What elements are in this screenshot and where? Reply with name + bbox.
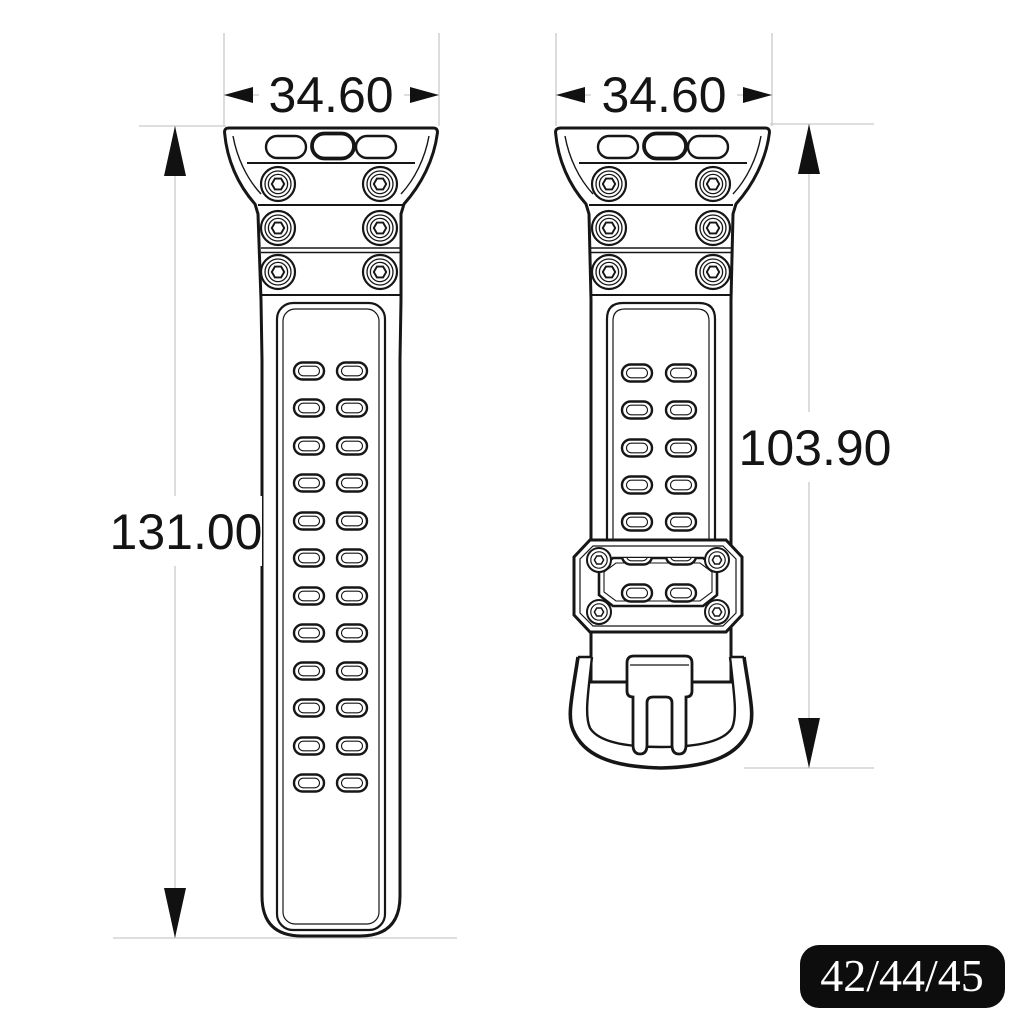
size-badge-label: 42/44/45 — [820, 950, 984, 1001]
strap-hole — [622, 365, 652, 382]
drawing-canvas: 34.60 34.60 131.00 103.90 42/44/45 — [0, 0, 1024, 1024]
strap-hole — [294, 475, 324, 492]
left-length-label: 131.00 — [110, 504, 263, 560]
strap-hole — [294, 400, 324, 417]
strap-hole — [337, 663, 367, 680]
strap-drawing: 34.60 34.60 131.00 103.90 42/44/45 — [0, 0, 1024, 1024]
strap-hole — [337, 550, 367, 567]
strap-hole — [294, 775, 324, 792]
strap-hole — [666, 402, 696, 419]
strap-hole — [622, 402, 652, 419]
screw — [592, 255, 626, 289]
buckle-tongue — [627, 656, 692, 754]
screw — [696, 167, 730, 201]
lug-slot — [688, 136, 728, 158]
arrow-up-icon — [798, 124, 820, 174]
size-badge: 42/44/45 — [800, 945, 1005, 1008]
left-width-label: 34.60 — [268, 67, 393, 123]
keeper-screw — [705, 548, 729, 572]
strap-panel-outer — [277, 303, 385, 930]
keeper-screw — [587, 600, 611, 624]
strap-hole — [337, 700, 367, 717]
lug-slot-center — [312, 134, 354, 159]
strap-hole — [337, 625, 367, 642]
strap-hole — [337, 438, 367, 455]
screw — [261, 255, 295, 289]
strap-hole — [622, 514, 652, 531]
screw — [696, 211, 730, 245]
right-length-label: 103.90 — [739, 420, 892, 476]
strap-hole — [337, 475, 367, 492]
keeper-screw — [587, 548, 611, 572]
screw — [261, 167, 295, 201]
strap-panel-outer — [607, 303, 715, 548]
arrow-down-icon — [164, 888, 186, 938]
arrow-up-icon — [164, 126, 186, 176]
strap-hole — [666, 514, 696, 531]
screw — [363, 255, 397, 289]
strap-hole — [294, 738, 324, 755]
strap-hole — [294, 625, 324, 642]
strap-hole — [622, 440, 652, 457]
buckle-keeper — [574, 540, 742, 632]
dimension-annotations: 34.60 34.60 131.00 103.90 — [110, 67, 897, 938]
strap-hole — [294, 663, 324, 680]
strap-hole — [337, 363, 367, 380]
strap-hole — [666, 440, 696, 457]
arrow-left-icon — [224, 87, 253, 103]
strap-hole — [294, 550, 324, 567]
strap-hole — [337, 588, 367, 605]
screw — [592, 211, 626, 245]
screw — [363, 167, 397, 201]
right-width-label: 34.60 — [601, 67, 726, 123]
strap-hole — [337, 775, 367, 792]
screw — [592, 167, 626, 201]
screw — [261, 211, 295, 245]
keeper-window — [599, 558, 717, 606]
arrow-down-icon — [798, 718, 820, 768]
strap-hole — [666, 477, 696, 494]
strap-hole — [337, 738, 367, 755]
arrow-right-icon — [410, 87, 439, 103]
lug-slot — [356, 136, 396, 158]
arrow-right-icon — [743, 87, 772, 103]
lug-slot — [598, 136, 638, 158]
strap-hole — [622, 477, 652, 494]
lug-slot-center — [644, 134, 686, 159]
strap-hole — [294, 363, 324, 380]
strap-hole — [337, 400, 367, 417]
strap-hole — [294, 588, 324, 605]
strap-hole — [294, 438, 324, 455]
strap-hole — [294, 513, 324, 530]
screw — [696, 255, 730, 289]
strap-hole — [337, 513, 367, 530]
strap-hole — [666, 365, 696, 382]
strap-hole — [294, 700, 324, 717]
lug-slot — [266, 136, 306, 158]
screw — [363, 211, 397, 245]
arrow-left-icon — [556, 87, 585, 103]
keeper-screw — [705, 600, 729, 624]
